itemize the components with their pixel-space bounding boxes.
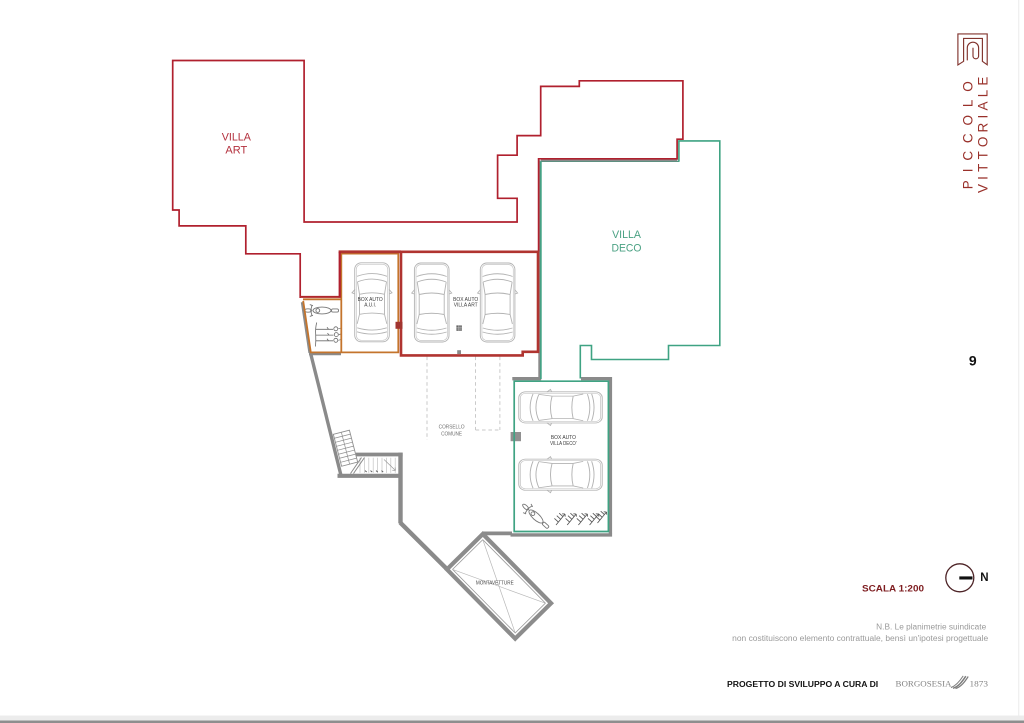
svg-text:N: N [980, 572, 988, 584]
svg-text:PROGETTO DI SVILUPPO A CURA DI: PROGETTO DI SVILUPPO A CURA DI [727, 680, 878, 689]
svg-text:N.B. Le planimetrie suindicate: N.B. Le planimetrie suindicate [876, 622, 986, 631]
svg-text:non costituiscono elemento con: non costituiscono elemento contrattuale,… [732, 634, 988, 643]
svg-text:VILLA: VILLA [612, 229, 641, 241]
svg-text:9: 9 [969, 353, 977, 369]
svg-text:MONTAVETTURE: MONTAVETTURE [476, 581, 514, 587]
svg-text:CORSELLO: CORSELLO [439, 424, 465, 430]
svg-text:ART: ART [225, 145, 247, 157]
svg-text:BORGOSESIA: BORGOSESIA [896, 679, 952, 688]
svg-text:A.U.I.: A.U.I. [364, 303, 376, 309]
svg-text:VILLA: VILLA [222, 132, 252, 144]
svg-text:1873: 1873 [970, 678, 989, 688]
svg-text:DECO: DECO [612, 242, 642, 254]
svg-text:COMUNE: COMUNE [441, 431, 462, 437]
svg-text:VILLA ART: VILLA ART [454, 303, 479, 309]
svg-text:VILLA DECO': VILLA DECO' [550, 441, 577, 447]
svg-text:SCALA 1:200: SCALA 1:200 [862, 584, 924, 595]
